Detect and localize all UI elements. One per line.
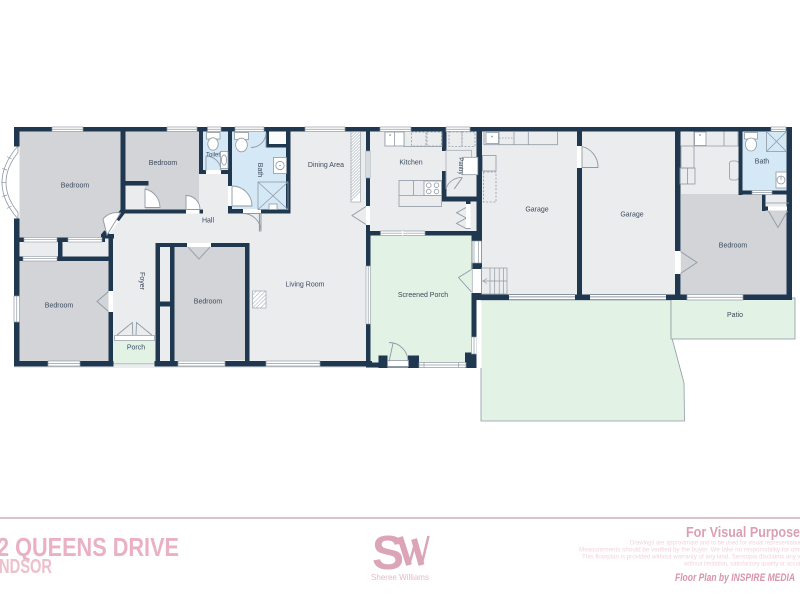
svg-text:Foyer: Foyer: [138, 272, 145, 291]
svg-text:Drawings are approximate and t: Drawings are approximate and to be used …: [630, 541, 800, 547]
svg-text:Garage: Garage: [620, 212, 643, 219]
svg-text:Hall: Hall: [202, 218, 215, 225]
svg-text:Kitchen: Kitchen: [399, 160, 422, 167]
svg-text:without limitation, satisfacto: without limitation, satisfactory quality…: [683, 562, 800, 568]
svg-text:Dining Area: Dining Area: [308, 162, 344, 169]
svg-text:Measurements should be verifie: Measurements should be verified by the b…: [579, 548, 800, 554]
svg-text:Floor Plan by INSPIRE MEDIA: Floor Plan by INSPIRE MEDIA: [675, 572, 795, 584]
svg-text:Bath: Bath: [755, 159, 770, 166]
svg-text:Bedroom: Bedroom: [149, 160, 178, 167]
svg-text:Toilet: Toilet: [206, 153, 220, 159]
svg-text:NDSOR: NDSOR: [0, 556, 52, 578]
svg-text:Garage: Garage: [525, 207, 548, 214]
svg-text:Pantry: Pantry: [457, 157, 463, 174]
svg-text:Bedroom: Bedroom: [45, 303, 74, 310]
svg-text:Porch: Porch: [127, 345, 145, 352]
svg-text:Patio: Patio: [727, 312, 743, 319]
svg-text:For Visual Purposes: For Visual Purposes: [686, 524, 800, 541]
svg-text:Sheree Williams: Sheree Williams: [371, 572, 429, 582]
svg-text:Living Room: Living Room: [286, 282, 325, 289]
svg-text:Bath: Bath: [256, 163, 263, 178]
svg-text:Bedroom: Bedroom: [719, 243, 748, 250]
svg-text:Bedroom: Bedroom: [61, 183, 90, 190]
svg-text:Bedroom: Bedroom: [194, 299, 223, 306]
svg-text:Screened Porch: Screened Porch: [398, 292, 448, 299]
svg-text:This floorplan is provided wit: This floorplan is provided without warra…: [582, 555, 800, 561]
